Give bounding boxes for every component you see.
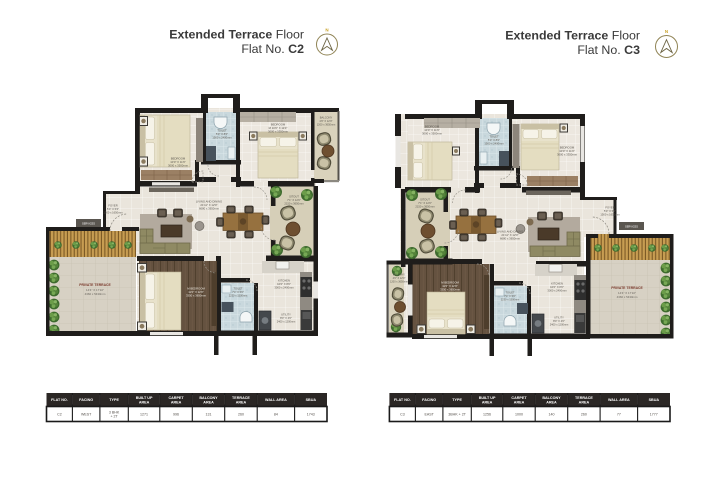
svg-text:1500 x 1650mm: 1500 x 1650mm bbox=[103, 211, 123, 215]
svg-text:6680 x 3650mm: 6680 x 3650mm bbox=[500, 237, 521, 241]
svg-text:1500 x 2400mm: 1500 x 2400mm bbox=[484, 142, 504, 146]
svg-text:UTILITY: UTILITY bbox=[554, 316, 564, 320]
svg-text:PRIVATE TERRACE: PRIVATE TERRACE bbox=[79, 283, 111, 287]
svg-text:FACING: FACING bbox=[79, 398, 93, 402]
svg-text:7'4" X 5'0": 7'4" X 5'0" bbox=[504, 294, 516, 298]
svg-text:1200 x 3650mm: 1200 x 3650mm bbox=[317, 123, 336, 127]
svg-text:3000 x 3500mm: 3000 x 3500mm bbox=[422, 132, 443, 136]
svg-text:2150 x 3650mm: 2150 x 3650mm bbox=[415, 205, 435, 209]
svg-text:AREA: AREA bbox=[139, 400, 150, 404]
svg-text:CARPET: CARPET bbox=[511, 396, 527, 400]
svg-text:2230 x 1500mm: 2230 x 1500mm bbox=[501, 298, 520, 302]
svg-text:1500 x 2400mm: 1500 x 2400mm bbox=[212, 136, 232, 140]
svg-text:TERRACE: TERRACE bbox=[232, 396, 250, 400]
svg-text:FLAT NO.: FLAT NO. bbox=[394, 398, 411, 402]
svg-text:EAST: EAST bbox=[424, 412, 434, 416]
svg-text:FOYER: FOYER bbox=[108, 203, 117, 207]
svg-text:3000 x 2400mm: 3000 x 2400mm bbox=[274, 286, 294, 290]
svg-text:260: 260 bbox=[238, 412, 244, 416]
svg-text:Flat No. C3: Flat No. C3 bbox=[577, 43, 640, 57]
svg-text:SERVICES: SERVICES bbox=[625, 225, 638, 229]
svg-text:UTILITY: UTILITY bbox=[281, 313, 291, 317]
svg-text:5'0" X 8'0": 5'0" X 8'0" bbox=[216, 132, 228, 136]
svg-text:AREA: AREA bbox=[236, 400, 247, 404]
svg-text:7'1" X 12'0": 7'1" X 12'0" bbox=[418, 201, 432, 205]
svg-text:1743: 1743 bbox=[307, 412, 315, 416]
svg-text:TOILET: TOILET bbox=[233, 287, 242, 291]
svg-text:1200 x 3650mm: 1200 x 3650mm bbox=[390, 280, 408, 283]
svg-text:AREA: AREA bbox=[546, 400, 557, 404]
svg-text:C2: C2 bbox=[57, 412, 62, 416]
svg-text:AREA: AREA bbox=[482, 400, 493, 404]
svg-text:WEST: WEST bbox=[81, 412, 92, 416]
svg-text:7'1" X 12'0": 7'1" X 12'0" bbox=[287, 198, 301, 202]
svg-text:3000 x 3350mm: 3000 x 3350mm bbox=[268, 130, 289, 134]
svg-text:SITOUT: SITOUT bbox=[420, 197, 430, 201]
svg-text:WALL AREA: WALL AREA bbox=[608, 398, 630, 402]
svg-text:6680 x 3650mm: 6680 x 3650mm bbox=[199, 207, 220, 211]
svg-text:2230 x 1500mm: 2230 x 1500mm bbox=[229, 294, 248, 298]
svg-text:FOYER: FOYER bbox=[605, 205, 614, 209]
svg-text:BALCONY: BALCONY bbox=[542, 396, 561, 400]
svg-text:C3: C3 bbox=[400, 412, 405, 416]
svg-text:KITCHEN: KITCHEN bbox=[551, 281, 563, 285]
svg-text:84: 84 bbox=[274, 412, 278, 416]
svg-text:3BHK + 2T: 3BHK + 2T bbox=[448, 412, 466, 416]
svg-text:3000 x 3500mm: 3000 x 3500mm bbox=[168, 164, 189, 168]
svg-text:N: N bbox=[325, 28, 328, 33]
svg-text:2400 x 1200mm: 2400 x 1200mm bbox=[550, 323, 569, 327]
svg-text:1256: 1256 bbox=[483, 412, 491, 416]
svg-text:1777: 1777 bbox=[650, 412, 658, 416]
svg-text:4360 x 5430mm: 4360 x 5430mm bbox=[617, 295, 638, 299]
svg-text:TERRACE: TERRACE bbox=[575, 396, 593, 400]
svg-text:140: 140 bbox=[548, 412, 554, 416]
svg-text:260: 260 bbox=[581, 412, 587, 416]
svg-text:3 BHK: 3 BHK bbox=[109, 410, 120, 414]
svg-text:3350 x 3650mm: 3350 x 3650mm bbox=[440, 288, 461, 292]
svg-text:BALCONY: BALCONY bbox=[199, 396, 218, 400]
svg-text:SBUA: SBUA bbox=[306, 398, 317, 402]
svg-text:TYPE: TYPE bbox=[452, 398, 462, 402]
svg-text:N: N bbox=[665, 29, 668, 34]
svg-text:FLAT NO.: FLAT NO. bbox=[51, 398, 68, 402]
svg-text:5'0" X 8'0": 5'0" X 8'0" bbox=[488, 138, 500, 142]
svg-text:KITCHEN: KITCHEN bbox=[278, 278, 290, 282]
svg-text:SITOUT: SITOUT bbox=[289, 194, 299, 198]
svg-text:AREA: AREA bbox=[171, 400, 182, 404]
svg-text:8'0" X 4'0": 8'0" X 4'0" bbox=[553, 319, 565, 323]
svg-text:TYPE: TYPE bbox=[109, 398, 119, 402]
svg-text:Extended Terrace Floor: Extended Terrace Floor bbox=[505, 29, 640, 43]
svg-text:WALL AREA: WALL AREA bbox=[265, 398, 287, 402]
svg-text:AREA: AREA bbox=[514, 400, 525, 404]
svg-text:4360 x 5430mm: 4360 x 5430mm bbox=[85, 292, 106, 296]
svg-text:1500 x 1650mm: 1500 x 1650mm bbox=[600, 213, 620, 217]
svg-text:5'0" X 5'6": 5'0" X 5'6" bbox=[107, 207, 119, 211]
svg-text:TOILET: TOILET bbox=[489, 134, 499, 138]
svg-text:8'0" X 4'0": 8'0" X 4'0" bbox=[280, 316, 292, 320]
svg-text:1271: 1271 bbox=[140, 412, 148, 416]
svg-text:Extended Terrace Floor: Extended Terrace Floor bbox=[169, 28, 304, 42]
svg-text:Flat No. C2: Flat No. C2 bbox=[241, 42, 304, 56]
svg-text:4'0" X 12'0": 4'0" X 12'0" bbox=[393, 277, 406, 280]
svg-text:CARPET: CARPET bbox=[168, 396, 184, 400]
svg-text:SBUA: SBUA bbox=[649, 398, 660, 402]
svg-text:10'0" X 8'0": 10'0" X 8'0" bbox=[550, 285, 564, 289]
svg-text:3000 x 2400mm: 3000 x 2400mm bbox=[547, 289, 567, 293]
svg-text:10'0" X 8'0": 10'0" X 8'0" bbox=[277, 282, 291, 286]
svg-text:PRIVATE TERRACE: PRIVATE TERRACE bbox=[611, 286, 643, 290]
svg-text:2150 x 3650mm: 2150 x 3650mm bbox=[284, 202, 304, 206]
svg-text:BUILT UP: BUILT UP bbox=[479, 396, 496, 400]
svg-text:996: 996 bbox=[173, 412, 179, 416]
svg-text:4'0" X 12'0": 4'0" X 12'0" bbox=[319, 119, 332, 123]
svg-text:77: 77 bbox=[617, 412, 621, 416]
svg-text:7'4" X 5'0": 7'4" X 5'0" bbox=[232, 290, 244, 294]
svg-text:131: 131 bbox=[206, 412, 212, 416]
svg-text:BALCONY: BALCONY bbox=[393, 274, 405, 277]
svg-text:AREA: AREA bbox=[203, 400, 214, 404]
svg-text:3350 x 3650mm: 3350 x 3650mm bbox=[186, 294, 207, 298]
svg-text:AREA: AREA bbox=[579, 400, 590, 404]
svg-text:FACING: FACING bbox=[422, 398, 436, 402]
svg-text:TOILET: TOILET bbox=[217, 128, 227, 132]
svg-text:TOILET: TOILET bbox=[505, 291, 514, 295]
svg-text:BALCONY: BALCONY bbox=[320, 116, 333, 120]
svg-text:5'0" X 5'6": 5'0" X 5'6" bbox=[604, 209, 616, 213]
svg-text:+ 2T: + 2T bbox=[110, 415, 118, 419]
svg-text:BUILT UP: BUILT UP bbox=[136, 396, 153, 400]
svg-text:2400 x 1200mm: 2400 x 1200mm bbox=[277, 320, 296, 324]
svg-text:SERVICES: SERVICES bbox=[82, 222, 95, 226]
svg-text:3000 x 3350mm: 3000 x 3350mm bbox=[557, 153, 578, 157]
svg-text:1000: 1000 bbox=[515, 412, 523, 416]
